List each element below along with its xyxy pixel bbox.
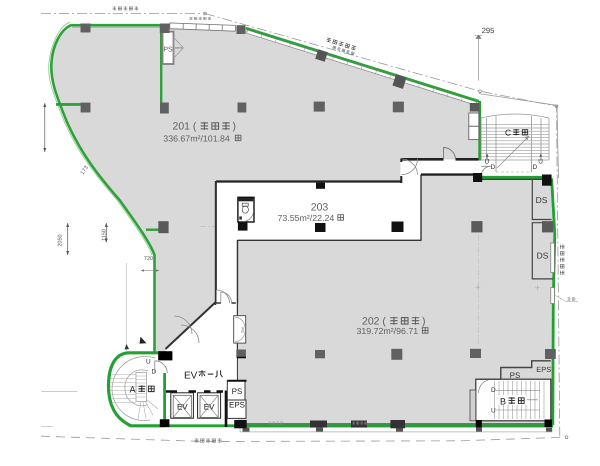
svg-text:1150: 1150 — [102, 229, 108, 241]
svg-text:DS: DS — [536, 195, 548, 205]
svg-text:C: C — [505, 128, 511, 138]
svg-text:EV: EV — [177, 402, 188, 411]
svg-text:D: D — [152, 369, 157, 376]
svg-text:295: 295 — [482, 26, 495, 35]
svg-text:PS: PS — [240, 327, 245, 333]
svg-text:PS: PS — [510, 371, 521, 380]
svg-text:U: U — [485, 159, 490, 166]
svg-text:73.55m²/22.24: 73.55m²/22.24 — [278, 213, 335, 223]
svg-text:D: D — [491, 387, 496, 394]
svg-text:PS: PS — [163, 47, 173, 54]
svg-text:319.72m²/96.71: 319.72m²/96.71 — [357, 326, 419, 336]
svg-text:720: 720 — [144, 256, 153, 262]
svg-text:DS: DS — [537, 250, 549, 260]
svg-text:A: A — [130, 385, 136, 395]
svg-text:173: 173 — [80, 165, 90, 176]
svg-text:PS: PS — [232, 387, 243, 396]
svg-text:D: D — [491, 164, 496, 171]
svg-text:203: 203 — [311, 202, 329, 214]
svg-text:B: B — [500, 397, 506, 407]
svg-text:EV: EV — [184, 370, 198, 381]
svg-text:EPS: EPS — [536, 365, 551, 374]
svg-text:U: U — [491, 408, 496, 415]
svg-text:U: U — [538, 159, 543, 166]
svg-text:U: U — [146, 359, 151, 366]
svg-text:): ) — [233, 121, 237, 133]
svg-text:336.67m²/101.84: 336.67m²/101.84 — [163, 133, 230, 143]
svg-text:201 (: 201 ( — [173, 121, 197, 133]
svg-text:EV: EV — [204, 402, 215, 411]
svg-text:): ) — [422, 315, 426, 327]
svg-text:D: D — [533, 164, 538, 171]
svg-text:2050: 2050 — [58, 234, 64, 246]
svg-text:EPS: EPS — [229, 400, 245, 409]
